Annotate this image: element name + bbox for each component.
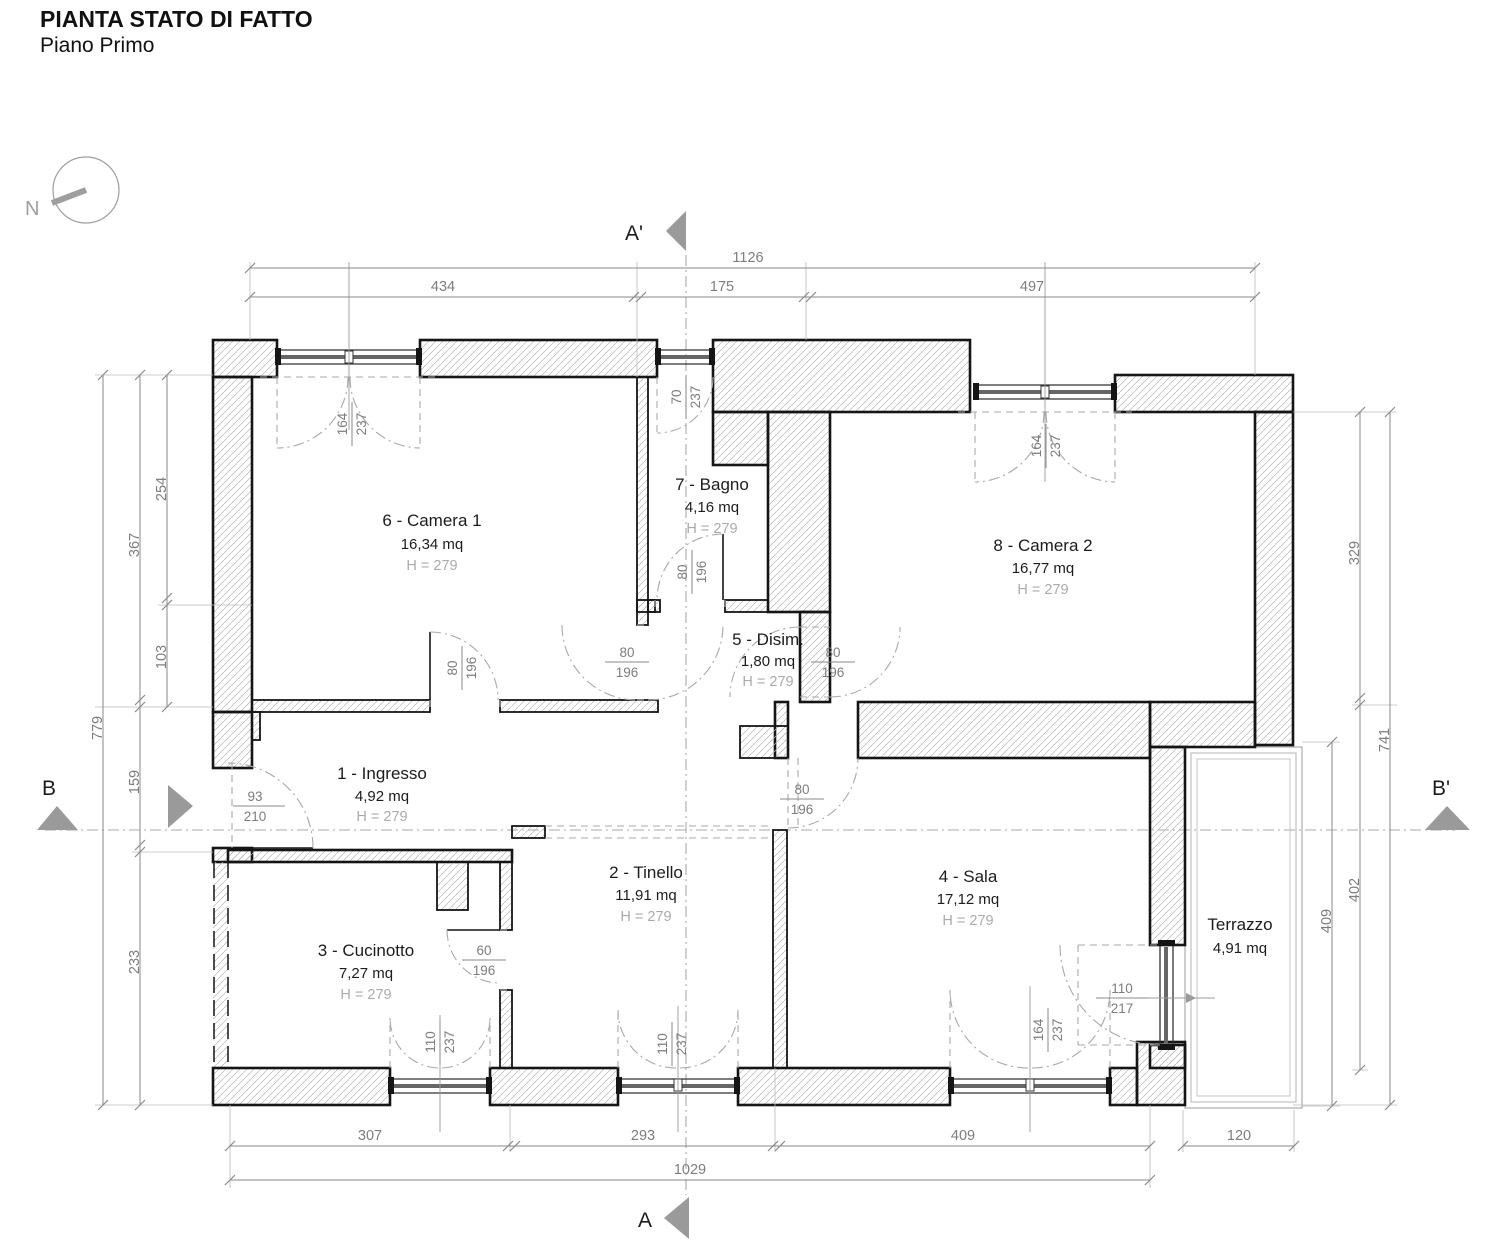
floor-plan-page: PIANTA STATO DI FATTO Piano Primo N A' A… xyxy=(0,0,1500,1242)
section-arrow-a xyxy=(664,1197,689,1239)
label-win-camera1: 164 237 xyxy=(335,402,369,446)
room-label-bagno: 7 - Bagno 4,16 mq H = 279 xyxy=(675,475,749,537)
svg-text:110: 110 xyxy=(655,1033,670,1055)
section-arrow-b-prime xyxy=(1425,806,1470,830)
svg-text:196: 196 xyxy=(694,561,709,584)
svg-text:1126: 1126 xyxy=(732,250,763,266)
door-terrazzo-glazed xyxy=(1060,940,1215,1050)
section-label-a: A xyxy=(638,1209,652,1232)
svg-text:237: 237 xyxy=(354,413,369,436)
svg-text:409: 409 xyxy=(1319,909,1335,933)
svg-text:60: 60 xyxy=(476,943,491,958)
svg-text:217: 217 xyxy=(1111,1001,1134,1016)
svg-text:H = 279: H = 279 xyxy=(356,809,407,825)
label-win-cucinotto: 110 237 xyxy=(423,1020,457,1064)
label-door-ingresso: 93 210 xyxy=(233,789,285,824)
section-label-b: B xyxy=(42,777,56,800)
svg-text:402: 402 xyxy=(1347,878,1363,902)
svg-text:80: 80 xyxy=(794,782,809,797)
svg-text:2 - Tinello: 2 - Tinello xyxy=(609,863,683,882)
section-arrow-a-prime xyxy=(666,211,686,251)
room-label-camera2: 8 - Camera 2 16,77 mq H = 279 xyxy=(993,536,1092,598)
svg-text:1,80 mq: 1,80 mq xyxy=(741,653,795,670)
svg-text:237: 237 xyxy=(442,1031,457,1054)
svg-text:329: 329 xyxy=(1347,541,1363,565)
svg-text:293: 293 xyxy=(631,1128,655,1144)
svg-text:1 - Ingresso: 1 - Ingresso xyxy=(337,764,427,783)
label-win-camera2: 164 237 xyxy=(1029,424,1063,468)
label-door-terrazzo: 110 217 xyxy=(1096,981,1148,1016)
svg-text:11,91 mq: 11,91 mq xyxy=(615,887,676,904)
label-door-bagno: 80 196 xyxy=(675,550,709,594)
svg-text:1029: 1029 xyxy=(674,1162,706,1178)
svg-text:H = 279: H = 279 xyxy=(340,987,391,1003)
svg-text:4 - Sala: 4 - Sala xyxy=(939,867,998,886)
dim-left: 779 367 159 233 254 103 xyxy=(90,370,172,1110)
floor-plan-drawing: PIANTA STATO DI FATTO Piano Primo N A' A… xyxy=(0,0,1500,1242)
svg-text:210: 210 xyxy=(244,809,267,824)
svg-text:237: 237 xyxy=(688,386,703,409)
label-win-sala: 164 237 xyxy=(1031,1008,1065,1052)
svg-text:237: 237 xyxy=(1050,1019,1065,1042)
svg-text:4,16 mq: 4,16 mq xyxy=(685,499,739,516)
svg-text:196: 196 xyxy=(822,665,845,680)
svg-text:196: 196 xyxy=(791,802,814,817)
svg-text:80: 80 xyxy=(445,660,460,675)
svg-text:164: 164 xyxy=(1029,434,1044,457)
svg-text:175: 175 xyxy=(710,279,734,295)
room-label-sala: 4 - Sala 17,12 mq H = 279 xyxy=(937,867,1000,929)
svg-text:H = 279: H = 279 xyxy=(742,674,793,690)
label-door-sala: 80 196 xyxy=(780,782,824,817)
svg-text:159: 159 xyxy=(127,770,143,794)
svg-text:93: 93 xyxy=(247,789,262,804)
svg-text:80: 80 xyxy=(825,645,840,660)
room-label-disimpegno: 5 - Disim. 1,80 mq H = 279 xyxy=(732,630,804,690)
svg-text:110: 110 xyxy=(423,1031,438,1053)
svg-text:4,92 mq: 4,92 mq xyxy=(355,788,409,805)
svg-text:164: 164 xyxy=(335,412,350,435)
svg-text:196: 196 xyxy=(616,665,639,680)
svg-text:434: 434 xyxy=(431,279,455,295)
svg-text:H = 279: H = 279 xyxy=(686,521,737,537)
svg-text:7,27 mq: 7,27 mq xyxy=(339,965,393,982)
dim-right: 409 329 402 741 xyxy=(1319,407,1395,1111)
window-sala xyxy=(948,986,1112,1132)
room-label-camera1: 6 - Camera 1 16,34 mq H = 279 xyxy=(382,511,481,574)
room-label-cucinotto: 3 - Cucinotto 7,27 mq H = 279 xyxy=(318,941,414,1003)
dim-bottom-segments: 307 293 409 120 xyxy=(225,1128,1299,1151)
svg-text:110: 110 xyxy=(1111,981,1133,996)
svg-text:237: 237 xyxy=(674,1033,689,1056)
page-title: PIANTA STATO DI FATTO xyxy=(40,6,313,32)
svg-text:409: 409 xyxy=(951,1128,975,1144)
svg-text:16,77 mq: 16,77 mq xyxy=(1012,560,1075,577)
svg-text:233: 233 xyxy=(127,950,143,974)
svg-text:H = 279: H = 279 xyxy=(942,913,993,929)
svg-text:80: 80 xyxy=(619,645,634,660)
door-bagno xyxy=(655,534,725,612)
svg-text:70: 70 xyxy=(669,389,684,404)
svg-text:164: 164 xyxy=(1031,1018,1046,1041)
dim-bottom-total: 1029 xyxy=(225,1162,1155,1185)
section-label-b-prime: B' xyxy=(1432,777,1450,800)
north-arrow-icon: N xyxy=(25,157,119,223)
window-tinello xyxy=(616,1006,740,1132)
svg-text:17,12 mq: 17,12 mq xyxy=(937,891,1000,908)
svg-text:497: 497 xyxy=(1020,279,1044,295)
svg-text:307: 307 xyxy=(358,1128,382,1144)
room-label-tinello: 2 - Tinello 11,91 mq H = 279 xyxy=(609,863,683,925)
svg-text:7 - Bagno: 7 - Bagno xyxy=(675,475,749,494)
svg-text:254: 254 xyxy=(154,477,170,501)
svg-text:16,34 mq: 16,34 mq xyxy=(401,536,464,553)
label-win-bagno: 70 237 xyxy=(669,375,703,419)
label-door-camera1: 80 196 xyxy=(445,646,479,690)
section-arrow-b xyxy=(37,806,78,830)
svg-text:779: 779 xyxy=(90,716,106,740)
svg-text:120: 120 xyxy=(1227,1128,1251,1144)
window-camera2 xyxy=(958,262,1132,482)
dim-top-total: 1126 xyxy=(245,250,1260,273)
svg-text:4,91 mq: 4,91 mq xyxy=(1213,940,1267,957)
svg-text:6 - Camera 1: 6 - Camera 1 xyxy=(382,511,481,530)
svg-text:H = 279: H = 279 xyxy=(620,909,671,925)
svg-text:Terrazzo: Terrazzo xyxy=(1207,915,1272,934)
svg-text:367: 367 xyxy=(127,533,143,557)
room-label-terrazzo: Terrazzo 4,91 mq xyxy=(1207,915,1272,957)
window-bagno xyxy=(655,348,715,433)
svg-text:80: 80 xyxy=(675,564,690,579)
svg-text:237: 237 xyxy=(1048,435,1063,458)
svg-text:5 - Disim.: 5 - Disim. xyxy=(732,630,804,649)
page-subtitle: Piano Primo xyxy=(40,34,154,57)
label-door-corridoio: 80 196 xyxy=(605,645,649,680)
svg-text:196: 196 xyxy=(473,963,496,978)
north-label: N xyxy=(25,198,39,220)
svg-text:741: 741 xyxy=(1377,728,1393,752)
svg-text:H = 279: H = 279 xyxy=(1017,582,1068,598)
svg-text:3 - Cucinotto: 3 - Cucinotto xyxy=(318,941,414,960)
svg-text:103: 103 xyxy=(154,645,170,669)
svg-text:H = 279: H = 279 xyxy=(406,558,457,574)
entrance-direction-arrow xyxy=(168,785,193,828)
svg-text:196: 196 xyxy=(464,657,479,680)
label-win-tinello: 110 237 xyxy=(655,1022,689,1066)
section-label-a-prime: A' xyxy=(625,222,643,245)
svg-text:8 - Camera 2: 8 - Camera 2 xyxy=(993,536,1092,555)
room-label-ingresso: 1 - Ingresso 4,92 mq H = 279 xyxy=(337,764,427,825)
dim-top-segments: 434 175 497 xyxy=(245,279,1260,302)
